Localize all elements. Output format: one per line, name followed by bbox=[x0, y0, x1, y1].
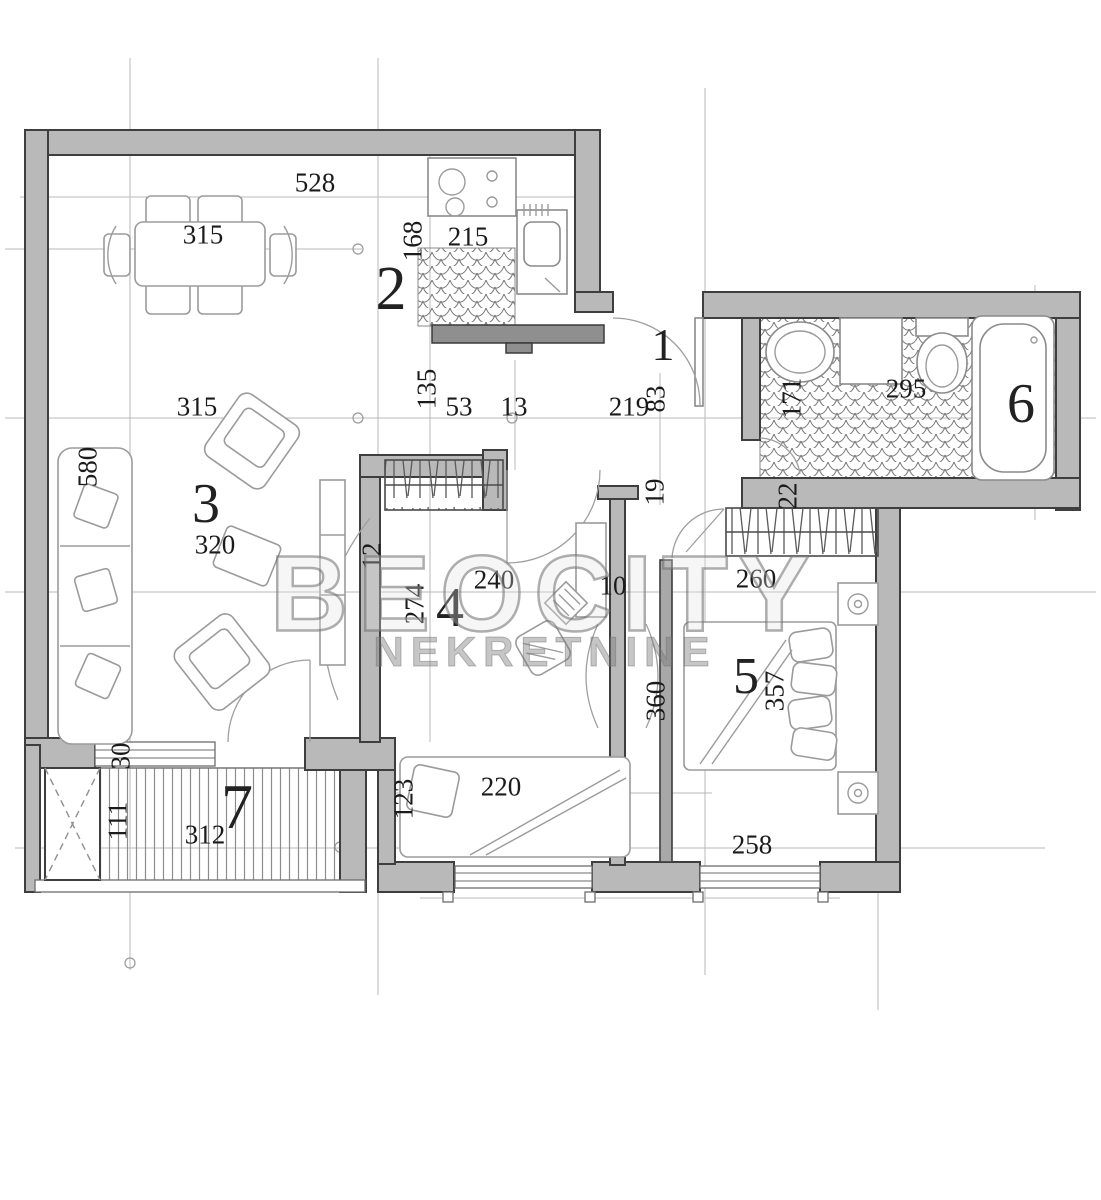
wall-living-bottom-right bbox=[305, 738, 395, 770]
kitchen-counter-notch bbox=[506, 343, 532, 353]
wall-bedroom-bottom-corner bbox=[820, 862, 900, 892]
dim-label: 295 bbox=[886, 376, 927, 403]
dim-label: 258 bbox=[732, 832, 773, 859]
kitchen-counter-wall bbox=[432, 325, 604, 343]
stove bbox=[428, 158, 516, 216]
wall-bathroom-left bbox=[742, 318, 760, 440]
wall-entry-step bbox=[575, 292, 613, 312]
dim-label: 135 bbox=[414, 369, 441, 410]
dim-label: 215 bbox=[448, 224, 489, 251]
sofa bbox=[58, 448, 132, 744]
room-label-hall: 1 bbox=[652, 322, 675, 368]
bathroom-sink bbox=[766, 322, 834, 382]
room-label-bathroom: 6 bbox=[1007, 376, 1035, 432]
dim-label: 123 bbox=[391, 779, 418, 820]
dim-label: 315 bbox=[177, 394, 218, 421]
nightstand bbox=[838, 772, 878, 814]
floor-plan: 528 315 168 215 315 580 320 135 53 13 21… bbox=[0, 0, 1101, 1200]
shaft-box bbox=[45, 768, 100, 880]
wall-top bbox=[25, 130, 600, 155]
dim-label: 528 bbox=[295, 170, 336, 197]
dim-label: 111 bbox=[105, 802, 132, 841]
dim-label: 83 bbox=[643, 386, 670, 413]
dim-label: 220 bbox=[481, 774, 522, 801]
wall-bottom-pier bbox=[592, 862, 700, 892]
wall-terrace-right bbox=[340, 770, 366, 892]
dim-label: 312 bbox=[185, 822, 226, 849]
window-room5 bbox=[700, 866, 820, 888]
room-label-kitchen: 2 bbox=[376, 258, 407, 320]
dining-set bbox=[104, 196, 296, 314]
dim-label: 580 bbox=[75, 447, 102, 488]
wall-room4-bottom-corner bbox=[378, 862, 454, 892]
terrace-parapet bbox=[35, 880, 365, 892]
wall-kitchen-right bbox=[575, 130, 600, 310]
wardrobe-room4 bbox=[385, 460, 503, 510]
room-label-terrace: 7 bbox=[221, 775, 253, 839]
wall-left bbox=[25, 130, 48, 745]
dim-label: 30 bbox=[108, 743, 135, 770]
kitchen-sink bbox=[517, 204, 567, 294]
dim-label: 19 bbox=[642, 479, 669, 506]
dim-label: 360 bbox=[643, 681, 670, 722]
wall-bedroom-right bbox=[876, 508, 900, 892]
dim-label: 320 bbox=[195, 532, 236, 559]
wall-room4-room5-cap bbox=[598, 486, 638, 499]
nightstand bbox=[838, 583, 878, 625]
watermark-tagline: NEKRETNINE bbox=[373, 628, 716, 676]
room-label-bedroom: 5 bbox=[733, 651, 759, 703]
window-room4 bbox=[455, 866, 592, 888]
kitchen-tile-floor bbox=[418, 248, 515, 326]
dim-label: 357 bbox=[762, 671, 789, 712]
wall-bathroom-top bbox=[703, 292, 1080, 318]
armchair bbox=[170, 610, 274, 714]
dim-label: 315 bbox=[183, 222, 224, 249]
dim-label: 171 bbox=[779, 378, 806, 419]
dim-label: 53 bbox=[446, 394, 473, 421]
dim-label: 22 bbox=[775, 483, 802, 510]
dim-label: 13 bbox=[501, 394, 528, 421]
room-label-living: 3 bbox=[192, 476, 220, 532]
wall-terrace-left bbox=[25, 745, 40, 892]
